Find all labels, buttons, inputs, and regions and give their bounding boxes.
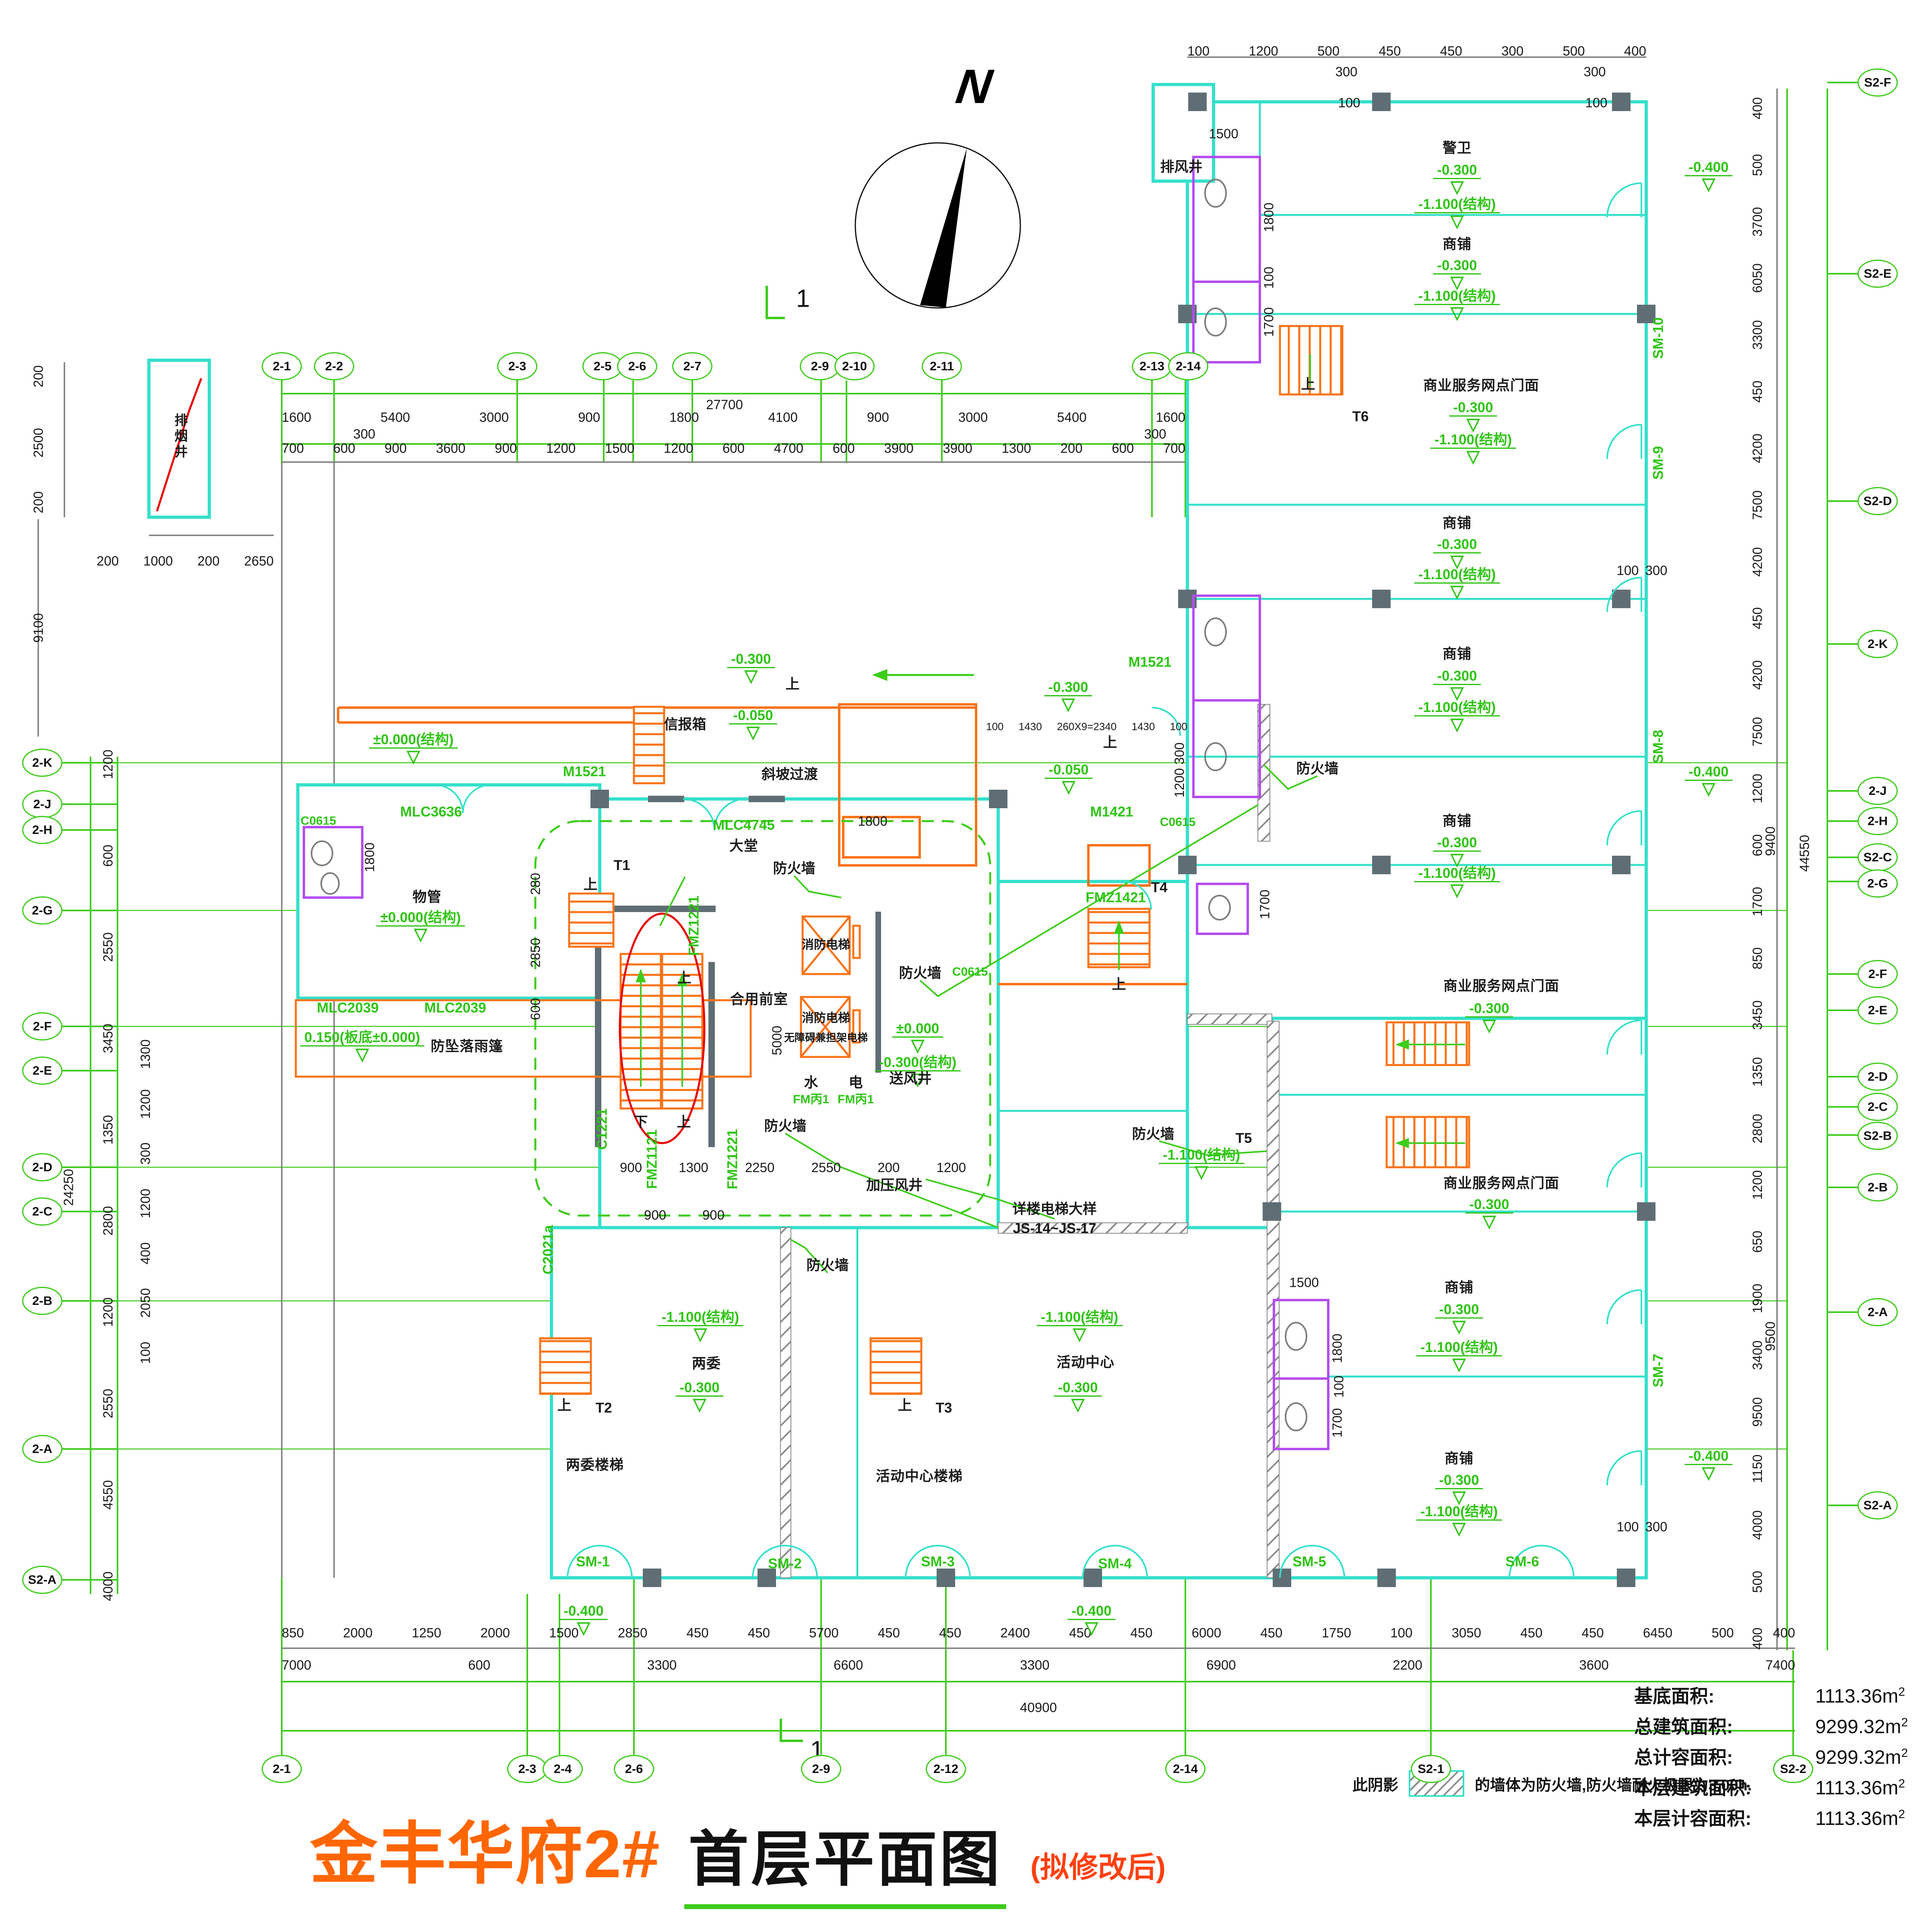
level-triangle-icon: ▽ [1453, 1318, 1466, 1335]
level-triangle-icon: ▽ [1451, 583, 1463, 600]
dim-left-top-1: 200 [32, 365, 45, 387]
level-triangle-icon: ▽ [1451, 881, 1463, 898]
dim-wuguan-280: 280 [529, 873, 542, 895]
room-facade-3: 商业服务网点门面 [1443, 1177, 1559, 1191]
code-c0615-b: C0615 [1160, 816, 1195, 828]
level-triangle-icon: ▽ [1451, 178, 1463, 195]
axis-bubble-top-1: 2-1 [262, 352, 302, 380]
level-out-right-3: -0.400▽ [1684, 1449, 1732, 1481]
dim-col-100-c: 100 [1616, 564, 1639, 577]
dim-left-shaft: 9100 [32, 613, 45, 642]
level-triangle-icon: ▽ [1451, 304, 1463, 321]
axis-bubble-right-1: S2-F [1858, 68, 1898, 97]
dim-wuguan-wc: 1800 [363, 842, 376, 872]
level-ramp-m050-a: -0.050▽ [729, 708, 777, 741]
level-shop6-2: -1.100(结构)▽ [1416, 1505, 1502, 1537]
area-row-value: 1113.36m2 [1815, 1777, 1905, 1799]
dim-left-total: 24250 [62, 1169, 75, 1206]
axis-bubble-left-6: 2-E [22, 1057, 62, 1085]
axis-bubble-top-10: 2-13 [1132, 352, 1172, 380]
level-shop5-2: -1.100(结构)▽ [1416, 1340, 1502, 1373]
area-row-value: 9299.32m2 [1815, 1716, 1908, 1738]
dim-core-row2: 900900 [644, 1207, 724, 1223]
dim-left-top-2: 2500 [32, 428, 45, 457]
level-shop1-1: -0.300▽ [1433, 258, 1481, 291]
level-facade3-1: -0.300▽ [1465, 1197, 1513, 1230]
axis-bubble-left-3: 2-H [22, 816, 62, 844]
level-triangle-icon: ▽ [1451, 213, 1463, 229]
code-fmz1221-top: FMZ1221 [687, 896, 701, 956]
level-triangle-icon: ▽ [356, 1046, 369, 1063]
axis-bubble-bottom-2: 2-3 [507, 1755, 547, 1783]
stair-label-t3: T3 [936, 1401, 952, 1415]
area-row-value: 9299.32m2 [1815, 1746, 1908, 1769]
room-water: 水 [804, 1076, 818, 1090]
dim-left-top-3: 200 [32, 491, 45, 513]
level-triangle-icon: ▽ [745, 667, 758, 684]
level-canopy-p150: 0.150(板底±0.000)▽ [300, 1030, 424, 1063]
level-triangle-icon: ▽ [1071, 1396, 1084, 1413]
dim-col-300-d: 300 [1645, 1520, 1667, 1534]
axis-bubble-top-8: 2-10 [834, 352, 875, 380]
stair-t3-up: 上 [898, 1399, 912, 1413]
level-triangle-icon: ▽ [1702, 1464, 1715, 1481]
area-row-label: 总建筑面积: [1634, 1712, 1803, 1739]
level-property: ±0.000(结构)▽ [376, 910, 465, 943]
room-smoke-shaft: 排烟井 [170, 413, 190, 460]
dim-bottom-row2: 70006003300660033006900220036007400 [282, 1657, 1795, 1673]
room-air-supply: 送风井 [889, 1072, 931, 1086]
note-elevator-detail-1: 详楼电梯大样 [1012, 1202, 1097, 1216]
sm-label-8: SM-8 [1651, 730, 1666, 764]
sm-label-2: SM-2 [768, 1557, 802, 1571]
axis-bubble-right-16: S2-A [1858, 1491, 1898, 1519]
dim-ramp-1200: 1200 [1173, 768, 1186, 797]
level-committee-1: -1.100(结构)▽ [658, 1310, 743, 1342]
sm-label-6: SM-6 [1505, 1555, 1539, 1569]
room-shop-5: 商铺 [1445, 1281, 1474, 1295]
code-m1421: M1421 [1090, 805, 1133, 819]
axis-bubble-top-4: 2-5 [582, 352, 623, 380]
code-fmz1221-bottom: FMZ1221 [726, 1129, 740, 1189]
level-out-right-2: -0.400▽ [1684, 765, 1732, 797]
level-shop4-2: -1.100(结构)▽ [1414, 866, 1500, 898]
code-c2021a: C2021a [541, 1225, 555, 1275]
level-facade1-2: -1.100(结构)▽ [1430, 433, 1516, 465]
dim-wc4-h3: 1700 [1331, 1408, 1344, 1437]
axis-bubble-right-11: 2-D [1858, 1063, 1898, 1091]
axis-bubble-bottom-5: 2-9 [801, 1755, 841, 1783]
level-triangle-icon: ▽ [1483, 1017, 1496, 1034]
level-t5: -1.100(结构)▽ [1159, 1148, 1245, 1180]
area-row-value: 1113.36m2 [1815, 1685, 1905, 1707]
axis-bubble-top-6: 2-7 [672, 352, 712, 380]
axis-bubble-right-5: 2-J [1858, 777, 1898, 805]
firewall-label-3: 防火墙 [764, 1119, 806, 1133]
room-property: 物管 [413, 890, 442, 904]
room-shop-3: 商铺 [1443, 647, 1472, 661]
dim-left-outer: 120060025503450135028001200255045504000 [93, 757, 123, 1594]
axis-bubble-right-6: 2-H [1858, 807, 1898, 835]
level-facade2-1: -0.300▽ [1465, 1001, 1513, 1034]
level-out-bottom-1: -0.400▽ [559, 1604, 607, 1636]
stair-label-t5: T5 [1236, 1131, 1252, 1146]
code-m1521-b: M1521 [1128, 655, 1171, 669]
dim-left-top-row: 20010002002650 [97, 553, 274, 569]
axis-bubble-top-5: 2-6 [617, 352, 657, 380]
dim-wc1-h1: 1800 [1262, 202, 1276, 232]
axis-bubble-bottom-8: S2-1 [1411, 1755, 1451, 1783]
level-shop1-2: -1.100(结构)▽ [1414, 289, 1500, 321]
stair-label-t2: T2 [596, 1401, 612, 1415]
level-out-bottom-2: -0.400▽ [1067, 1604, 1115, 1636]
sm-label-4: SM-4 [1098, 1557, 1132, 1571]
level-triangle-icon: ▽ [1451, 716, 1463, 733]
dim-col-300-b: 300 [1583, 65, 1606, 78]
level-guard-1: -0.300▽ [1433, 163, 1481, 195]
level-triangle-icon: ▽ [1702, 175, 1715, 192]
dim-wc4-h1: 1800 [1331, 1333, 1344, 1363]
level-committee-2: -0.300▽ [675, 1381, 723, 1413]
dim-col-300-a: 300 [1335, 65, 1357, 78]
axis-bubble-bottom-1: 2-1 [262, 1755, 302, 1783]
dim-col-100-a: 100 [1338, 96, 1360, 109]
note-elevator-detail-2: JS-14~JS-17 [1013, 1222, 1096, 1236]
sheet-title-drawing: 首层平面图 [684, 1810, 1006, 1909]
area-table-row: 总建筑面积: 9299.32m2 [1634, 1712, 1908, 1739]
level-triangle-icon: ▽ [1467, 448, 1480, 465]
dim-wc4-w: 1500 [1289, 1276, 1319, 1289]
dim-wuguan-2850: 2850 [529, 938, 542, 967]
code-c1221: C1221 [595, 1108, 609, 1150]
level-shop6-1: -0.300▽ [1435, 1473, 1483, 1505]
firewall-label-4: 防火墙 [806, 1259, 848, 1273]
stair-core-up2: 上 [677, 1115, 691, 1129]
stair-label-t4: T4 [1151, 881, 1168, 895]
area-summary-table: 基底面积: 1113.36m2 总建筑面积: 9299.32m2 总计容面积: … [1634, 1682, 1908, 1831]
level-shop2-1: -0.300▽ [1433, 537, 1481, 570]
area-row-value: 1113.36m2 [1815, 1808, 1905, 1830]
level-shop3-2: -1.100(结构)▽ [1414, 700, 1500, 733]
sm-label-5: SM-5 [1292, 1555, 1326, 1569]
level-triangle-icon: ▽ [694, 1325, 707, 1342]
level-guard-2: -1.100(结构)▽ [1414, 197, 1500, 229]
axis-bubble-right-8: 2-G [1858, 869, 1898, 898]
dim-right-9400: 9400 [1764, 826, 1777, 856]
dim-left-inner: 1300120030012004002050100 [131, 1046, 160, 1360]
level-out-right-1: -0.400▽ [1684, 160, 1732, 192]
axis-bubble-top-11: 2-14 [1168, 352, 1208, 380]
sm-label-1: SM-1 [576, 1555, 610, 1569]
level-triangle-icon: ▽ [577, 1619, 590, 1636]
room-exhaust-shaft: 排风井 [1160, 160, 1202, 174]
axis-bubble-top-7: 2-9 [800, 352, 840, 380]
axis-bubble-right-13: S2-B [1858, 1122, 1898, 1150]
level-triangle-icon: ▽ [414, 926, 427, 943]
stair-core-up: 上 [677, 971, 691, 985]
sheet-title-revision: (拟修改后) [1030, 1843, 1166, 1886]
room-shop-4: 商铺 [1443, 814, 1472, 828]
axis-bubble-left-10: 2-A [22, 1435, 62, 1463]
axis-bubble-top-2: 2-2 [314, 352, 354, 380]
code-mlc4745: MLC4745 [713, 818, 775, 832]
dim-top-offset-left: 300 [353, 427, 375, 441]
level-activity-2: -0.300▽ [1054, 1381, 1102, 1413]
sheet-title-project: 金丰华府2# [310, 1799, 661, 1897]
stair-t1-up: 上 [583, 878, 597, 892]
level-triangle-icon: ▽ [1453, 1488, 1466, 1505]
code-c0615-a: C0615 [301, 815, 336, 827]
section-mark-top: 1 [796, 285, 810, 313]
dim-top-row1: 16005400300090018004100900300054001600 [282, 410, 1185, 425]
room-mailbox: 信报箱 [664, 718, 706, 732]
dim-wc4-h2: 100 [1332, 1375, 1346, 1397]
code-mlc2039-b: MLC2039 [424, 1001, 486, 1015]
level-ramp-m300-a: -0.300▽ [727, 652, 775, 684]
room-shop-2: 商铺 [1443, 516, 1472, 530]
floor-plan-sheet: { "title": {"project":"金丰华府2#","drawing"… [0, 0, 1932, 1932]
code-fmb1-a: FM丙1 [793, 1094, 829, 1106]
room-activity: 活动中心 [1057, 1356, 1115, 1370]
room-facade-2: 商业服务网点门面 [1443, 979, 1559, 993]
ramp-up-a: 上 [785, 677, 799, 691]
stair-label-t1: T1 [614, 859, 630, 873]
axis-bubble-left-8: 2-C [22, 1197, 62, 1226]
code-fmz1421: FMZ1421 [1086, 891, 1146, 905]
axis-bubble-bottom-6: 2-12 [926, 1755, 966, 1783]
room-front-room: 合用前室 [730, 993, 788, 1007]
room-lobby: 大堂 [729, 839, 758, 853]
axis-bubble-right-14: 2-B [1858, 1173, 1898, 1201]
code-fmz1121: FMZ1121 [645, 1129, 659, 1189]
area-row-label: 本层计容面积: [1634, 1804, 1803, 1831]
dim-wing-top-row: 1001200500450450300500400 [1187, 43, 1646, 59]
firewall-label-5: 防火墙 [1296, 762, 1338, 776]
dim-top-row2: 7006009003600900120015001200600470060039… [282, 441, 1185, 456]
axis-bubble-top-9: 2-11 [922, 352, 962, 380]
stair-label-t6: T6 [1352, 410, 1369, 424]
level-triangle-icon: ▽ [1085, 1619, 1098, 1636]
dim-top-total: 27700 [706, 398, 743, 411]
level-triangle-icon: ▽ [1062, 778, 1075, 795]
stair-t4-up: 上 [1112, 978, 1126, 992]
level-ramp-m050-b: -0.050▽ [1044, 763, 1092, 795]
level-triangle-icon: ▽ [693, 1396, 706, 1413]
room-guard: 警卫 [1443, 141, 1472, 155]
code-mlc2039-a: MLC2039 [317, 1001, 379, 1015]
dim-wc3-h: 1700 [1258, 890, 1271, 919]
dim-wc1-h3: 1700 [1262, 307, 1276, 336]
sm-label-3: SM-3 [921, 1555, 955, 1569]
dim-wc1-h2: 100 [1262, 266, 1276, 289]
dim-wc1-w: 1500 [1209, 127, 1238, 140]
code-c0615-c: C0615 [952, 966, 988, 978]
stair-t6-up: 上 [1301, 378, 1315, 392]
level-core-zero: ±0.000▽ [892, 1022, 943, 1054]
axis-bubble-left-9: 2-B [22, 1287, 62, 1315]
level-triangle-icon: ▽ [1195, 1163, 1208, 1180]
dim-bottom-total: 40900 [1020, 1701, 1057, 1714]
sm-label-10: SM-10 [1651, 317, 1666, 359]
level-triangle-icon: ▽ [1483, 1213, 1496, 1230]
room-fire-elevator-1: 消防电梯 [802, 939, 850, 951]
level-ramp-m300-b: -0.300▽ [1044, 680, 1092, 712]
dim-col-100-d: 100 [1616, 1520, 1639, 1534]
level-triangle-icon: ▽ [1453, 1356, 1466, 1373]
ramp-up-b: 上 [1103, 736, 1117, 750]
sm-label-9: SM-9 [1651, 446, 1666, 480]
level-triangle-icon: ▽ [1702, 780, 1715, 797]
code-mlc3636: MLC3636 [400, 805, 462, 819]
axis-bubble-left-7: 2-D [22, 1153, 62, 1181]
area-row-label: 基底面积: [1634, 1682, 1803, 1708]
area-table-row: 本层计容面积: 1113.36m2 [1634, 1804, 1908, 1831]
axis-bubble-bottom-9: S2-2 [1773, 1755, 1813, 1783]
legend-text: 的墙体为防火墙,防火墙耐火极限为3.00h. [1475, 1773, 1752, 1795]
level-shop5-1: -0.300▽ [1435, 1302, 1483, 1335]
level-triangle-icon: ▽ [747, 724, 760, 741]
dim-right-9500: 9500 [1764, 1321, 1777, 1351]
sm-label-7: SM-7 [1651, 1354, 1666, 1387]
code-m1521-a: M1521 [563, 765, 606, 779]
legend-prefix: 此阴影 [1352, 1773, 1398, 1795]
firewall-label-6: 防火墙 [1132, 1127, 1174, 1141]
room-committee-stair: 两委楼梯 [566, 1458, 624, 1472]
level-triangle-icon: ▽ [1453, 1520, 1466, 1537]
firewall-label-1: 防火墙 [773, 862, 815, 876]
axis-bubble-left-11: S2-A [22, 1566, 62, 1594]
code-fmb1-b: FM丙1 [838, 1094, 874, 1106]
axis-bubble-right-2: S2-E [1858, 260, 1898, 288]
level-triangle-icon: ▽ [1451, 684, 1463, 701]
dim-wuguan-600: 600 [529, 998, 542, 1020]
axis-bubble-left-1: 2-K [22, 749, 62, 777]
dim-lobby-door: 1800 [858, 815, 887, 828]
room-fire-elevator-2: 消防电梯 [802, 1012, 850, 1024]
level-activity-1: -1.100(结构)▽ [1037, 1310, 1123, 1342]
axis-bubble-left-2: 2-J [22, 790, 62, 818]
level-triangle-icon: ▽ [911, 1037, 924, 1054]
room-shop-6: 商铺 [1445, 1452, 1474, 1466]
room-stretcher-elevator: 无障碍兼担架电梯 [784, 1032, 868, 1043]
dim-right-total: 44550 [1798, 835, 1811, 872]
dim-bottom-row1: 8502000125020001500285045045057004504502… [282, 1625, 1795, 1641]
north-compass [855, 143, 1020, 308]
axis-bubble-right-3: S2-D [1858, 487, 1898, 515]
axis-bubble-right-7: S2-C [1858, 843, 1898, 871]
level-facade1-1: -0.300▽ [1449, 400, 1497, 433]
axis-bubble-top-3: 2-3 [497, 352, 537, 380]
axis-bubble-bottom-4: 2-6 [614, 1755, 654, 1783]
level-shop3-1: -0.300▽ [1433, 669, 1481, 701]
area-table-row: 基底面积: 1113.36m2 [1634, 1682, 1908, 1708]
axis-bubble-right-15: 2-A [1858, 1298, 1898, 1326]
dim-col-300-c: 300 [1645, 564, 1667, 577]
dim-top-offset-right: 300 [1144, 427, 1166, 441]
axis-bubble-left-4: 2-G [22, 896, 62, 925]
firewall-label-2: 防火墙 [899, 966, 941, 980]
room-slope: 斜坡过渡 [762, 768, 818, 782]
room-canopy: 防坠落雨篷 [431, 1040, 503, 1054]
axis-bubble-right-12: 2-C [1858, 1093, 1898, 1121]
dim-right-col: 4005003700605033004504200750042004504200… [1743, 101, 1772, 1646]
room-elec: 电 [848, 1076, 863, 1090]
level-triangle-icon: ▽ [407, 748, 420, 765]
room-pressur-shaft: 加压风井 [866, 1179, 923, 1193]
axis-bubble-right-9: 2-F [1858, 960, 1898, 988]
axis-bubble-bottom-3: 2-4 [543, 1755, 583, 1783]
dim-col-100-b: 100 [1585, 96, 1607, 109]
dim-ramp-row: 1001430260X9=23401430100 [986, 720, 1187, 733]
room-activity-stair: 活动中心楼梯 [876, 1470, 963, 1484]
dim-core-row1: 9001300225025502001200 [620, 1160, 966, 1175]
axis-bubble-left-5: 2-F [22, 1012, 62, 1040]
dim-ramp-300: 300 [1173, 742, 1186, 764]
room-shop-1: 商铺 [1443, 237, 1472, 252]
axis-bubble-right-4: 2-K [1858, 630, 1898, 658]
level-canopy-zone: ±0.000(结构)▽ [369, 733, 458, 765]
area-table-row: 总计容面积: 9299.32m2 [1634, 1743, 1908, 1769]
axis-bubble-bottom-7: 2-14 [1165, 1755, 1205, 1783]
level-shop4-1: -0.300▽ [1433, 836, 1481, 868]
level-shop2-2: -1.100(结构)▽ [1414, 568, 1500, 600]
level-triangle-icon: ▽ [1073, 1325, 1086, 1342]
level-triangle-icon: ▽ [1062, 696, 1075, 712]
level-triangle-icon: ▽ [1467, 416, 1480, 433]
room-facade-1: 商业服务网点门面 [1423, 379, 1539, 393]
room-committee: 两委 [692, 1357, 721, 1371]
axis-bubble-right-10: 2-E [1858, 996, 1898, 1024]
dim-front-room-h: 5000 [770, 1026, 784, 1055]
stair-core-down: 下 [634, 1115, 648, 1129]
stair-t2-up: 上 [557, 1399, 571, 1413]
